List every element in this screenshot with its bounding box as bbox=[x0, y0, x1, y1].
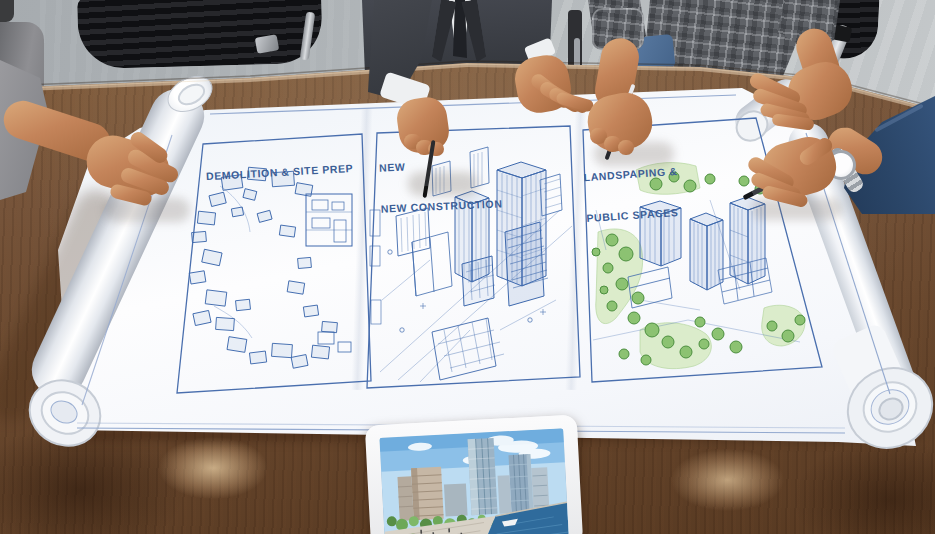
panel-title-demolition-line1: DEMOLITION & SITE PREP bbox=[206, 162, 354, 184]
panel-title-landscaping-line2: PUBLIC SPACES bbox=[586, 206, 681, 226]
tablet-render-image bbox=[379, 428, 569, 534]
photo-conference-blueprint-scene: DEMOLITION & SITE PREP NEW NEW CONSTRUCT… bbox=[0, 0, 935, 534]
plaid-left-knuckle-3 bbox=[618, 140, 634, 155]
panel-title-demolition: DEMOLITION & SITE PREP bbox=[204, 135, 355, 211]
shadow-suit-hand bbox=[408, 172, 478, 196]
panel-title-landscaping-line1: LANDSPAPING & bbox=[583, 165, 678, 185]
tablet-screen bbox=[379, 428, 569, 534]
tablet bbox=[365, 415, 584, 534]
panel-title-construction-line2: NEW CONSTRUCTION bbox=[381, 198, 503, 217]
